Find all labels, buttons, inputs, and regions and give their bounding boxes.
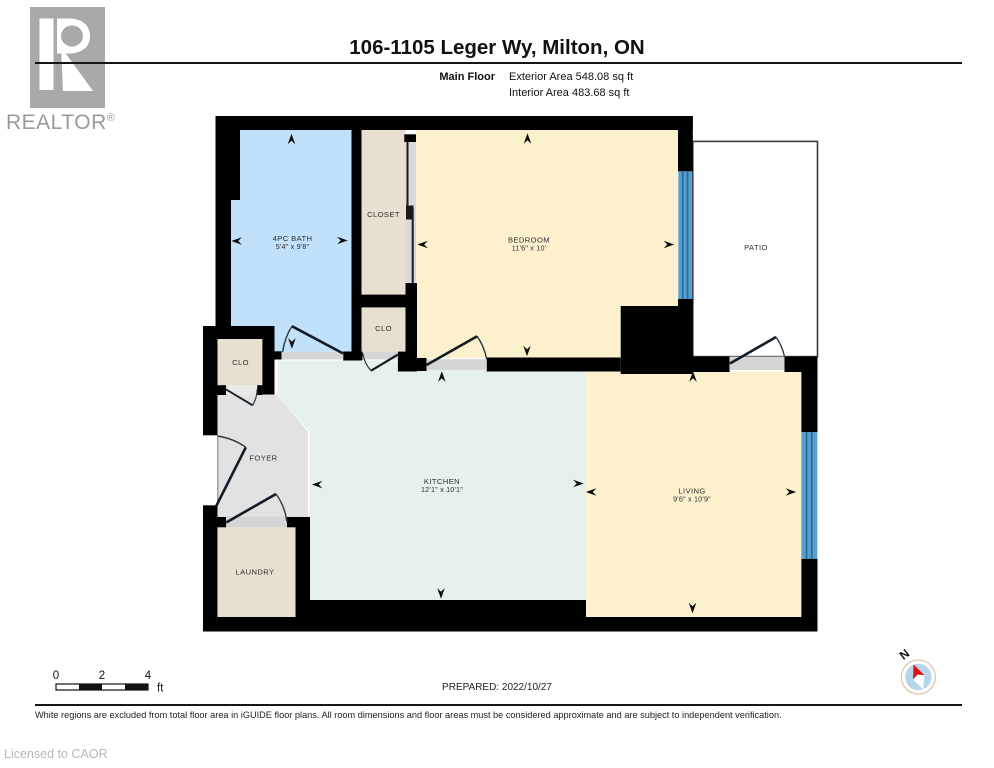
svg-text:CLO: CLO (232, 358, 249, 367)
svg-text:FOYER: FOYER (249, 454, 277, 463)
svg-text:CLOSET: CLOSET (367, 210, 400, 219)
svg-text:N: N (897, 646, 912, 662)
svg-text:9'6" x 10'9": 9'6" x 10'9" (673, 495, 711, 504)
svg-text:4: 4 (145, 670, 152, 682)
svg-text:CLO: CLO (375, 324, 392, 333)
svg-text:2: 2 (99, 670, 105, 682)
svg-text:12'1" x 10'1": 12'1" x 10'1" (421, 485, 463, 494)
svg-text:LAUNDRY: LAUNDRY (236, 568, 275, 577)
svg-text:5'4" x 9'8": 5'4" x 9'8" (276, 242, 310, 251)
svg-text:0: 0 (53, 670, 59, 682)
svg-text:PATIO: PATIO (744, 243, 768, 252)
svg-text:11'6" x 10': 11'6" x 10' (512, 244, 547, 253)
